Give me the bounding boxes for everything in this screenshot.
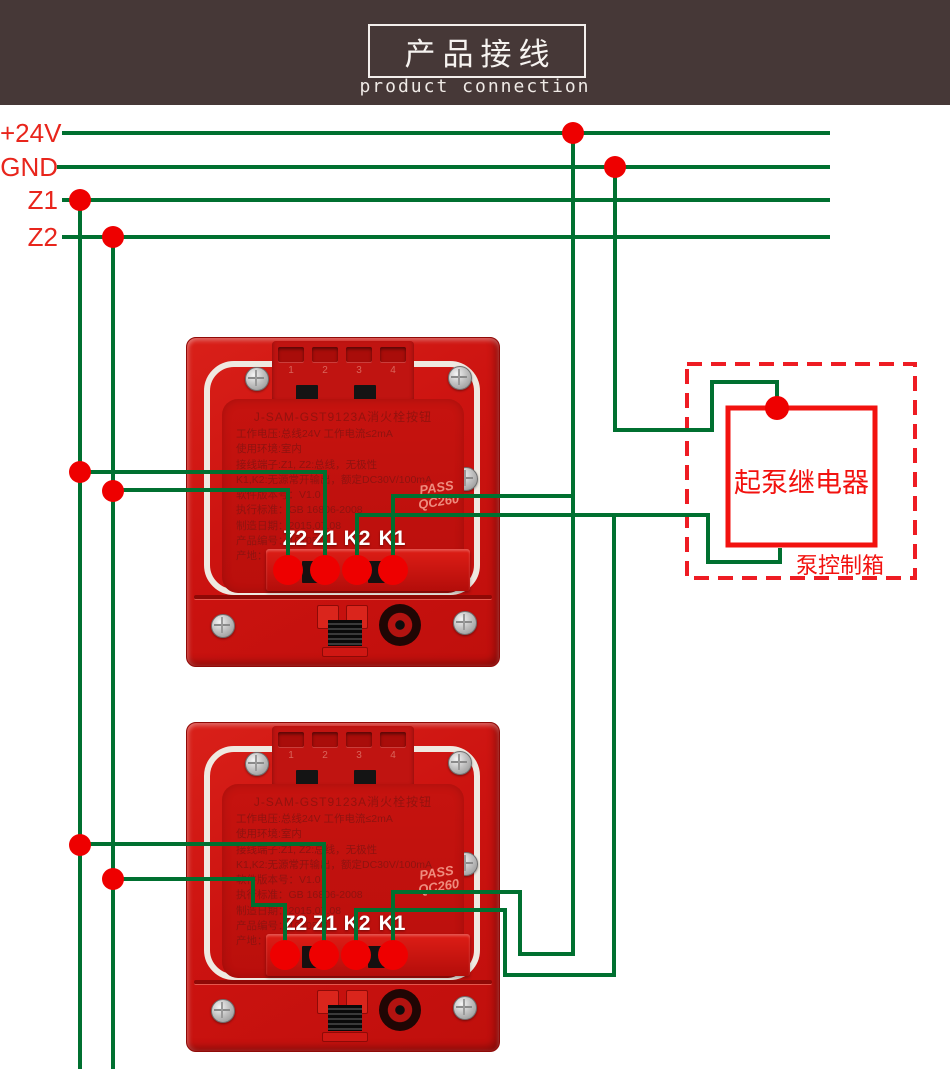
device-connector-block: 1 2 3 4 <box>272 726 414 790</box>
screw-icon <box>245 367 269 391</box>
terminal-label-z1: Z1 <box>307 527 343 551</box>
screw-icon <box>448 366 472 390</box>
header-band: 产品接线 product connection <box>0 0 950 105</box>
page-subtitle: product connection <box>0 76 950 97</box>
terminal-label-k2: K2 <box>339 912 375 936</box>
connector-slot <box>380 347 406 362</box>
spec-line: 工作电压:总线24V 工作电流≤2mA <box>236 812 450 827</box>
terminal-label-k2: K2 <box>339 527 375 551</box>
sounder-hole <box>379 989 421 1031</box>
connector-slot <box>380 732 406 747</box>
latch-ribbed-part <box>328 1005 362 1031</box>
junction-dot-relay <box>765 396 789 420</box>
clip-number: 1 <box>278 750 304 761</box>
connector-slot <box>278 347 304 362</box>
terminal-label-k1: K1 <box>374 527 410 551</box>
page-title: 产品接线 <box>398 29 557 74</box>
junction-dot-z2 <box>102 226 124 248</box>
terminal-strip <box>266 934 470 976</box>
terminal-label-z1: Z1 <box>307 912 343 936</box>
qc-pass-stamp: PASS QC260 <box>415 478 460 512</box>
junction-dot-24v <box>562 122 584 144</box>
device-groove <box>194 595 492 600</box>
clip-number: 2 <box>312 750 338 761</box>
junction-dot-gnd <box>604 156 626 178</box>
screw-icon <box>245 752 269 776</box>
device-groove <box>194 980 492 985</box>
device-model: J-SAM-GST9123A消火栓按钮 <box>222 408 464 425</box>
connector-slot <box>346 732 372 747</box>
hydrant-button-device-top: 1 2 3 4 J-SAM-GST9123A消火栓按钮 工作电压:总线24V 工… <box>186 337 500 667</box>
wire-gnd-to-relay <box>615 167 777 430</box>
bus-label-gnd: GND <box>0 151 58 183</box>
spec-line: 接线端子:Z1, Z2:总线，无极性 <box>236 843 450 858</box>
clip-number: 3 <box>346 750 372 761</box>
junction-dot-bottom-z2 <box>102 868 124 890</box>
terminal-slot <box>302 946 319 968</box>
spec-line: 工作电压:总线24V 工作电流≤2mA <box>236 427 450 442</box>
bus-label-z2: Z2 <box>0 221 58 253</box>
junction-dot-z1 <box>69 189 91 211</box>
bus-label-z1: Z1 <box>0 184 58 216</box>
spec-line: 使用环境:室内 <box>236 827 450 842</box>
pump-relay-label: 起泵继电器 <box>728 461 875 500</box>
hydrant-button-device-bottom: 1 2 3 4 J-SAM-GST9123A消火栓按钮 工作电压:总线24V 工… <box>186 722 500 1052</box>
latch-ribbed-part <box>328 620 362 646</box>
terminal-slot <box>368 561 385 583</box>
screw-icon <box>453 611 477 635</box>
pump-control-box-label: 泵控制箱 <box>786 548 894 580</box>
sounder-hole <box>379 604 421 646</box>
connector-slot <box>346 347 372 362</box>
screw-icon <box>448 751 472 775</box>
title-box: 产品接线 <box>368 24 586 78</box>
qc-pass-stamp: PASS QC260 <box>415 863 460 897</box>
screw-icon <box>453 996 477 1020</box>
junction-dot-top-z1 <box>69 461 91 483</box>
clip-number: 4 <box>380 750 406 761</box>
latch-base <box>322 647 368 657</box>
screw-icon <box>211 999 235 1023</box>
clip-number: 4 <box>380 365 406 376</box>
terminal-strip <box>266 549 470 591</box>
junction-dot-bottom-z1 <box>69 834 91 856</box>
latch-base <box>322 1032 368 1042</box>
device-connector-block: 1 2 3 4 <box>272 341 414 405</box>
spec-line: 接线端子:Z1, Z2:总线，无极性 <box>236 458 450 473</box>
connector-slot <box>278 732 304 747</box>
terminal-slot <box>368 946 385 968</box>
clip-number: 3 <box>346 365 372 376</box>
bus-label-24v: +24V <box>0 117 58 149</box>
terminal-label-k1: K1 <box>374 912 410 936</box>
spec-line: 使用环境:室内 <box>236 442 450 457</box>
clip-number: 2 <box>312 365 338 376</box>
connector-slot <box>312 347 338 362</box>
wiring-diagram: 产品接线 product connection +24V GND Z1 Z2 1… <box>0 0 950 1069</box>
clip-number: 1 <box>278 365 304 376</box>
junction-dot-top-z2 <box>102 480 124 502</box>
device-model: J-SAM-GST9123A消火栓按钮 <box>222 793 464 810</box>
screw-icon <box>211 614 235 638</box>
terminal-slot <box>302 561 319 583</box>
connector-slot <box>312 732 338 747</box>
